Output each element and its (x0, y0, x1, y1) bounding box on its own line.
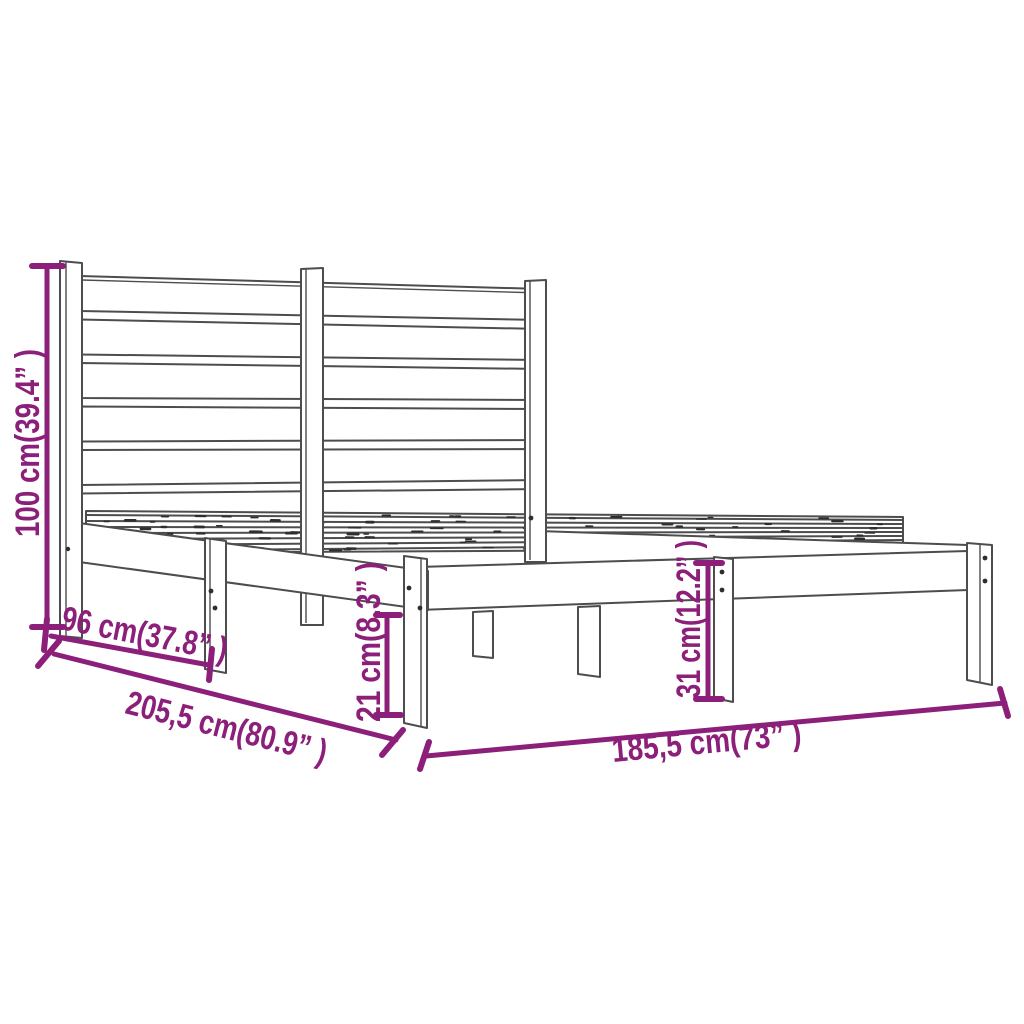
front-corner-leg (404, 556, 427, 728)
dimension-label-height: 100 cm(39.4” ) (9, 349, 47, 537)
dimension-cap (44, 619, 47, 650)
headboard-right-post (525, 280, 546, 562)
rear-middle-leg (473, 611, 493, 658)
rear-right-leg (967, 543, 992, 685)
screw-dot (66, 547, 70, 551)
product-dimension-diagram: 100 cm(39.4” ) 96 cm(37.8” ) 205,5 cm(80… (0, 0, 1024, 1024)
headboard-left-post (60, 261, 82, 638)
screw-dot (983, 556, 988, 561)
dimension-side-96cm: 96 cm(37.8” ) (44, 600, 231, 680)
screw-dot (418, 606, 423, 611)
rear-middle-leg (578, 606, 600, 677)
bed-frame-diagram-svg: 100 cm(39.4” ) 96 cm(37.8” ) 205,5 cm(80… (0, 0, 1024, 1024)
screw-dot (720, 588, 725, 593)
dimension-label-clearance: 21 cm(8.3” ) (350, 562, 388, 722)
screw-dot (213, 606, 218, 611)
dimension-cap (1000, 689, 1008, 716)
foot-middle-leg (714, 557, 733, 702)
screw-dot (720, 570, 725, 575)
dimension-cap (382, 730, 403, 755)
screw-dot (407, 586, 412, 591)
screw-dot (209, 589, 214, 594)
dimension-label-width: 185,5 cm(73” ) (610, 715, 803, 770)
screw-dot (983, 579, 988, 584)
screw-dot (529, 516, 534, 521)
dimension-label-base-height: 31 cm(12.2” ) (670, 540, 708, 698)
dimension-height-100cm: 100 cm(39.4” ) (9, 266, 63, 627)
dimension-cap (420, 742, 429, 769)
